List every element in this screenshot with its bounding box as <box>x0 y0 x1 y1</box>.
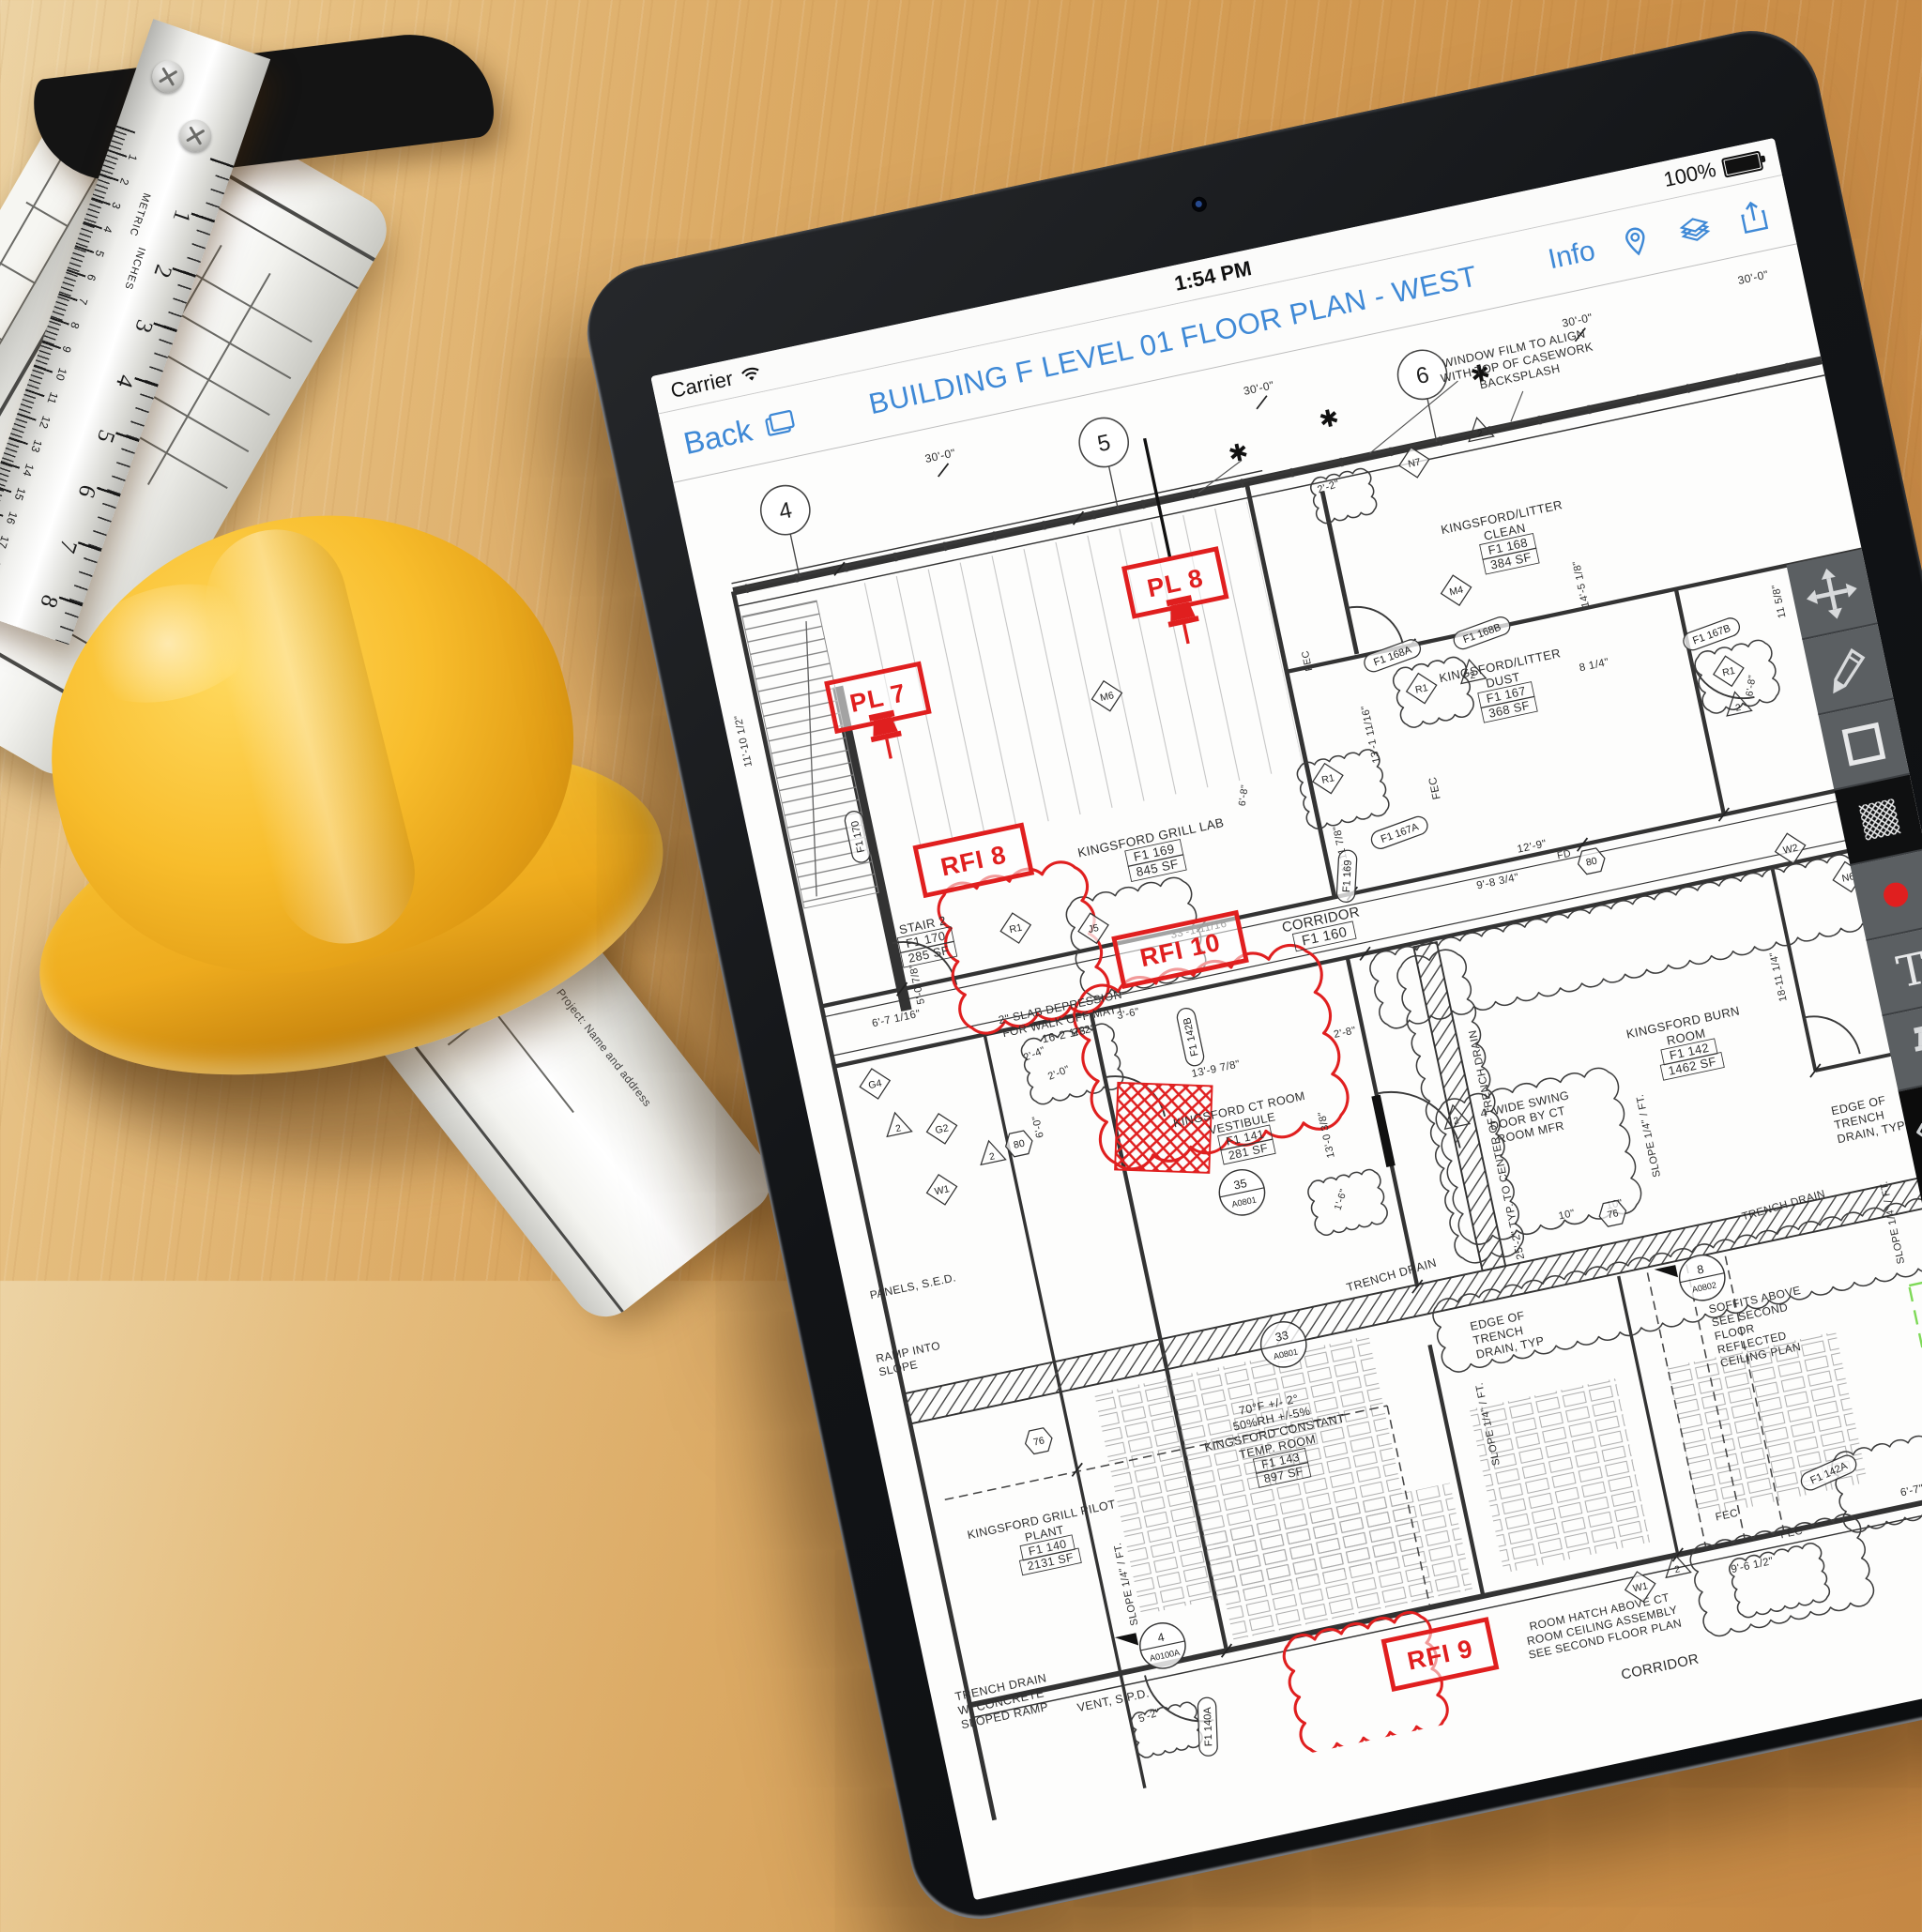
svg-text:VENT, S.P.D.: VENT, S.P.D. <box>1076 1686 1151 1714</box>
svg-text:6'-7 1/16": 6'-7 1/16" <box>871 1009 922 1030</box>
tablet-screen: Carrier 1:54 PM 100% Back BUILDING F LEV… <box>650 138 1922 1900</box>
plan-symbol: R1 <box>1310 760 1347 797</box>
svg-text:RAMP INTOSLOPE: RAMP INTOSLOPE <box>875 1339 944 1379</box>
svg-text:1'-6": 1'-6" <box>1333 1188 1350 1212</box>
front-camera-icon <box>1190 195 1208 213</box>
svg-text:6'-8": 6'-8" <box>1237 783 1251 806</box>
svg-text:SLOPE 1/4" / FT.: SLOPE 1/4" / FT. <box>1635 1093 1663 1179</box>
pushpin-icon <box>1901 1018 1922 1072</box>
svg-text:35: 35 <box>1232 1177 1248 1193</box>
plan-symbol: F1 168B <box>1452 615 1513 651</box>
screw-icon <box>175 115 216 156</box>
svg-text:11'-10 1/2": 11'-10 1/2" <box>733 714 755 768</box>
metric-numbers: 123456789101112131415161718 <box>153 19 270 59</box>
plan-symbol: 35A0801 <box>1215 1165 1269 1219</box>
svg-text:FEC: FEC <box>1427 776 1443 800</box>
svg-text:2'-0": 2'-0" <box>1046 1064 1072 1083</box>
plan-symbol: F1 168A <box>1362 637 1423 674</box>
plan-symbol: 2 <box>882 1110 911 1136</box>
info-button[interactable]: Info <box>1546 236 1598 277</box>
move-icon <box>1799 561 1864 626</box>
text-tool-icon: T <box>1893 946 1922 994</box>
rectangle-icon <box>1838 718 1891 771</box>
back-button[interactable]: Back <box>680 413 755 462</box>
svg-text:✱: ✱ <box>1317 404 1341 434</box>
svg-text:11 5/8": 11 5/8" <box>1770 584 1788 619</box>
tablet: Carrier 1:54 PM 100% Back BUILDING F LEV… <box>574 18 1922 1931</box>
svg-text:KINGSFORD GRILL LABF1 169845 S: KINGSFORD GRILL LABF1 169845 SF <box>1076 815 1231 890</box>
plan-symbol: 76 <box>1023 1426 1054 1455</box>
svg-text:FD: FD <box>1556 848 1572 862</box>
prev-page-button[interactable]: « <box>1910 1105 1922 1150</box>
svg-text:8 1/4": 8 1/4" <box>1579 657 1610 674</box>
plan-symbol: 80 <box>1003 1130 1034 1159</box>
plan-symbol: W1 <box>923 1171 960 1208</box>
svg-text:F1 169: F1 169 <box>1341 860 1354 892</box>
svg-text:2'-4": 2'-4" <box>1022 1045 1047 1064</box>
plan-symbol: G2 <box>923 1110 960 1147</box>
inch-numbers: 12345678 <box>153 19 270 59</box>
svg-text:2'-2": 2'-2" <box>1316 479 1341 496</box>
svg-text:2" SLAB DEPRESSIONFOR WALK OFF: 2" SLAB DEPRESSIONFOR WALK OFF MATT16-2 … <box>998 988 1129 1054</box>
plan-symbol: R1 <box>1403 670 1440 707</box>
pencil-icon <box>1820 641 1875 696</box>
svg-text:2: 2 <box>1734 703 1742 714</box>
svg-text:TRENCH DRAINW/ CONCRETESLOPED: TRENCH DRAINW/ CONCRETESLOPED RAMP <box>954 1671 1054 1731</box>
screw-icon <box>148 56 189 97</box>
metric-label: METRIC <box>127 191 152 237</box>
svg-text:STAIR 2F1 170285 SF: STAIR 2F1 170285 SF <box>898 913 953 966</box>
location-pin-icon[interactable] <box>1615 221 1657 263</box>
svg-text:✱: ✱ <box>1226 438 1250 468</box>
svg-text:ROOM HATCH ABOVE CTROOM CEILIN: ROOM HATCH ABOVE CTROOM CEILING ASSEMBLY… <box>1521 1590 1683 1662</box>
carrier-label: Carrier <box>668 366 735 403</box>
svg-text:33: 33 <box>1274 1329 1290 1345</box>
svg-text:30'-0": 30'-0" <box>1736 267 1769 287</box>
plan-symbol: 76 <box>1597 1199 1628 1228</box>
svg-text:CORRIDOR: CORRIDOR <box>1620 1651 1701 1682</box>
svg-text:10": 10" <box>1558 1208 1577 1222</box>
plan-symbol: R1 <box>998 910 1034 947</box>
share-icon[interactable] <box>1732 196 1775 238</box>
svg-text:6'-7": 6'-7" <box>1899 1483 1922 1499</box>
svg-text:30'-0": 30'-0" <box>923 446 956 465</box>
svg-text:30'-0": 30'-0" <box>1561 311 1594 330</box>
wifi-icon <box>739 364 764 386</box>
svg-text:13'-0 3/8": 13'-0 3/8" <box>1317 1110 1337 1159</box>
svg-text:9'-8 3/4": 9'-8 3/4" <box>1475 872 1519 891</box>
layers-icon[interactable] <box>1673 208 1716 251</box>
plan-symbol: F1 167A <box>1369 814 1430 851</box>
plan-symbol: F1 169 <box>1336 850 1357 903</box>
plan-symbol: J5 <box>1075 910 1112 947</box>
svg-text:F1 140A: F1 140A <box>1202 1707 1214 1747</box>
svg-text:18-11 1/4": 18-11 1/4" <box>1768 951 1790 1002</box>
svg-text:WINDOW FILM TO ALIGNWITH TOP O: WINDOW FILM TO ALIGNWITH TOP OF CASEWORK… <box>1437 326 1597 399</box>
svg-text:PANELS, S.E.D.: PANELS, S.E.D. <box>869 1270 957 1301</box>
svg-text:6'-8": 6'-8" <box>1744 675 1758 697</box>
plan-symbol: 2 <box>976 1138 1005 1164</box>
plan-symbol: M4 <box>1438 572 1474 609</box>
inches-label: INCHES <box>122 246 147 292</box>
svg-text:6'-0": 6'-0" <box>1030 1115 1046 1139</box>
battery-icon <box>1721 150 1763 177</box>
plan-symbol: R1 <box>1710 653 1747 690</box>
battery-percent: 100% <box>1661 158 1717 192</box>
svg-text:2: 2 <box>988 1151 996 1163</box>
svg-text:5'-2": 5'-2" <box>1136 1707 1162 1725</box>
plan-symbol: F1 142B <box>1176 1007 1206 1068</box>
svg-text:2: 2 <box>894 1123 902 1134</box>
svg-text:2: 2 <box>1673 1564 1681 1575</box>
plan-symbol: F1 140A <box>1197 1697 1217 1757</box>
svg-text:14'-5 1/8": 14'-5 1/8" <box>1571 560 1592 609</box>
red-dot-icon <box>1873 873 1917 917</box>
hatch-pattern-icon <box>1854 794 1906 845</box>
svg-text:2'-8": 2'-8" <box>1333 1025 1357 1041</box>
hatch-pattern-tool[interactable] <box>1835 775 1922 866</box>
plan-symbol: G4 <box>857 1066 893 1103</box>
blueprint-canvas[interactable]: ✱✱✱ 456WINDOW FILM TO ALIGNWITH TOP OF C… <box>673 244 1922 1900</box>
svg-text:30'-0": 30'-0" <box>1243 378 1275 398</box>
svg-text:13'-1 11/16": 13'-1 11/16" <box>1360 704 1383 764</box>
